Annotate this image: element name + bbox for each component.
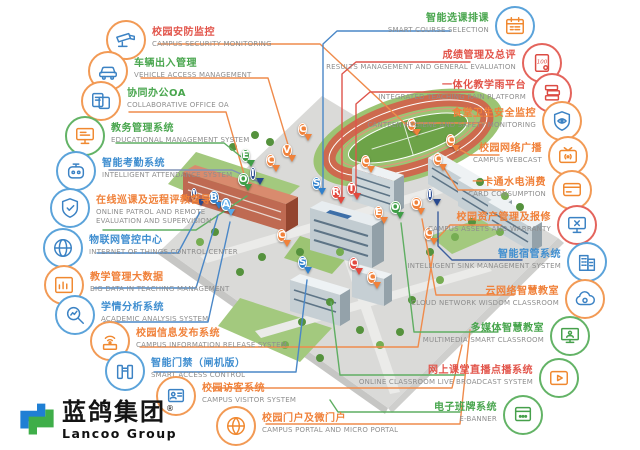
magnifier-chart-icon bbox=[55, 295, 95, 335]
feature-title: 教学管理大数据 bbox=[90, 268, 230, 283]
feature-title: 学情分析系统 bbox=[101, 298, 208, 313]
feature-subtitle: CLOUD NETWORK WISDOM CLASSROOM bbox=[411, 299, 559, 307]
logo-text-en: Lancoo Group bbox=[62, 426, 177, 441]
feature-subtitle: INTELLIGENT SINK MANAGEMENT SYSTEM bbox=[408, 262, 562, 270]
feature-multimedia-classroom: 多媒体智慧教室MULTIMEDIA SMART CLASSROOM bbox=[423, 316, 590, 356]
feature-subtitle: MULTIMEDIA SMART CLASSROOM bbox=[423, 336, 544, 344]
feature-educational-management: 教务管理系统EDUCATIONAL MANAGEMENT SYSTEM bbox=[65, 116, 250, 156]
feature-collaborative-oa: 协同办公OACOLLABORATIVE OFFICE OA bbox=[81, 81, 229, 121]
feature-title: 智能宿管系统 bbox=[498, 245, 561, 260]
globe-icon bbox=[43, 228, 83, 268]
feature-e-banner: 电子班牌系统E-BANNER bbox=[434, 395, 543, 435]
feature-title: 教务管理系统 bbox=[111, 119, 250, 134]
feature-subtitle: SMART COURSE SELECTION bbox=[388, 26, 489, 34]
feature-title: 成绩管理及总评 bbox=[443, 46, 517, 61]
feature-title: 一卡通水电消费 bbox=[473, 173, 547, 188]
feature-intelligent-attendance: 智能考勤系统INTELLIGENT ATTENDANCE SYSTEM bbox=[56, 151, 232, 191]
feature-title: 多媒体智慧教室 bbox=[471, 319, 545, 334]
feature-intelligent-dorm-management: 智能宿管系统INTELLIGENT SINK MANAGEMENT SYSTEM bbox=[408, 242, 608, 282]
lancoo-logo: 蓝鸽集团® Lancoo Group bbox=[18, 400, 177, 441]
feature-subtitle: CAMPUS SECURITY MONITORING bbox=[152, 40, 272, 48]
feature-title: 校园资产管理及报修 bbox=[457, 208, 552, 223]
feature-online-patrol: 在线巡课及远程评教督导ONLINE PATROL AND REMOTE EVAL… bbox=[50, 188, 246, 228]
feature-subtitle: COLLABORATIVE OFFICE OA bbox=[127, 101, 229, 109]
feature-cloud-wisdom-classroom: 云网络智慧教室CLOUD NETWORK WISDOM CLASSROOM bbox=[411, 279, 605, 319]
calendar-icon bbox=[495, 6, 535, 46]
feature-iot-control-center: 物联网管控中心INTERNET OF THINGS CONTROL CENTER bbox=[43, 228, 238, 268]
feature-campus-assets: 校园资产管理及报修CAMPUS ASSETS AND WARRANTY bbox=[428, 205, 597, 245]
feature-canteen-monitoring: 食堂卫生安全监控CANTEEN HYGIENE AND SAFETY MONIT… bbox=[367, 101, 582, 141]
feature-title: 智能考勤系统 bbox=[102, 154, 232, 169]
feature-subtitle: CAMPUS VISITOR SYSTEM bbox=[202, 396, 296, 404]
feature-title: 一体化教学雨平台 bbox=[442, 76, 526, 91]
logo-text-cn: 蓝鸽集团® bbox=[62, 400, 177, 425]
feature-subtitle: ONLINE PATROL AND REMOTE EVALUATION AND … bbox=[96, 208, 246, 226]
card-icon bbox=[552, 170, 592, 210]
portal-globe-icon bbox=[216, 406, 256, 446]
feature-title: 校园信息发布系统 bbox=[136, 324, 287, 339]
feature-subtitle: CANTEEN HYGIENE AND SAFETY MONITORING bbox=[367, 121, 536, 129]
pc-tools-icon bbox=[557, 205, 597, 245]
feature-subtitle: BIG DATA IN TEACHING MANAGEMENT bbox=[90, 285, 230, 293]
feature-subtitle: E-BANNER bbox=[459, 415, 497, 423]
feature-title: 智能选课排课 bbox=[426, 9, 489, 24]
feature-subtitle: CAMPUS PORTAL AND MICRO PORTAL bbox=[262, 426, 398, 434]
shield-eye-icon bbox=[542, 101, 582, 141]
feature-title: 在线巡课及远程评教督导 bbox=[96, 191, 246, 206]
building-icon bbox=[567, 242, 607, 282]
feature-title: 网上课堂直播点播系统 bbox=[428, 361, 533, 376]
feature-title: 智能门禁（闸机版） bbox=[151, 354, 246, 369]
feature-subtitle: CAMPUS ASSETS AND WARRANTY bbox=[428, 225, 551, 233]
feature-subtitle: INTELLIGENT ATTENDANCE SYSTEM bbox=[102, 171, 232, 179]
feature-subtitle: EDUCATIONAL MANAGEMENT SYSTEM bbox=[111, 136, 250, 144]
feature-title: 校园门户及微门户 bbox=[262, 409, 398, 424]
feature-subtitle: VEHICLE ACCESS MANAGEMENT bbox=[134, 71, 252, 79]
feature-card-consumption: 一卡通水电消费CARD CONSUMPTION bbox=[468, 170, 592, 210]
feature-title: 电子班牌系统 bbox=[434, 398, 497, 413]
cloud-icon bbox=[565, 279, 605, 319]
gate-icon bbox=[105, 351, 145, 391]
feature-campus-portal: 校园门户及微门户CAMPUS PORTAL AND MICRO PORTAL bbox=[216, 406, 398, 446]
smart-campus-infographic: 100 bbox=[0, 0, 640, 450]
registered-mark: ® bbox=[166, 404, 176, 413]
feature-title: 云网络智慧教室 bbox=[486, 282, 560, 297]
feature-title: 食堂卫生安全监控 bbox=[452, 104, 536, 119]
oa-document-icon bbox=[81, 81, 121, 121]
feature-title: 车辆出入管理 bbox=[134, 54, 252, 69]
feature-subtitle: INTEGRATED TEACHING RAIN PLATFORM bbox=[378, 93, 526, 101]
e-banner-icon bbox=[503, 395, 543, 435]
monitor-icon bbox=[65, 116, 105, 156]
robot-icon bbox=[56, 151, 96, 191]
video-play-icon bbox=[539, 358, 579, 398]
feature-title: 协同办公OA bbox=[127, 84, 229, 99]
feature-title: 校园网络广播 bbox=[479, 139, 542, 154]
feature-subtitle: ONLINE CLASSROOM LIVE BROADCAST SYSTEM bbox=[359, 378, 533, 386]
feature-smart-course-selection: 智能选课排课SMART COURSE SELECTION bbox=[388, 6, 535, 46]
feature-subtitle: INTERNET OF THINGS CONTROL CENTER bbox=[89, 248, 238, 256]
feature-online-classroom-broadcast: 网上课堂直播点播系统ONLINE CLASSROOM LIVE BROADCAS… bbox=[359, 358, 579, 398]
feature-subtitle: CAMPUS INFORMATION RELEASE SYSTEM bbox=[136, 341, 287, 349]
lancoo-logo-mark bbox=[18, 400, 56, 438]
feature-title: 物联网管控中心 bbox=[89, 231, 238, 246]
feature-subtitle: RESULTS MANAGEMENT AND GENERAL EVALUATIO… bbox=[326, 63, 516, 71]
shield-icon bbox=[50, 188, 90, 228]
feature-subtitle: CARD CONSUMPTION bbox=[468, 190, 546, 198]
feature-title: 校园安防监控 bbox=[152, 23, 272, 38]
feature-title: 校园访客系统 bbox=[202, 379, 296, 394]
smart-screen-icon bbox=[550, 316, 590, 356]
feature-subtitle: CAMPUS WEBCAST bbox=[473, 156, 542, 164]
